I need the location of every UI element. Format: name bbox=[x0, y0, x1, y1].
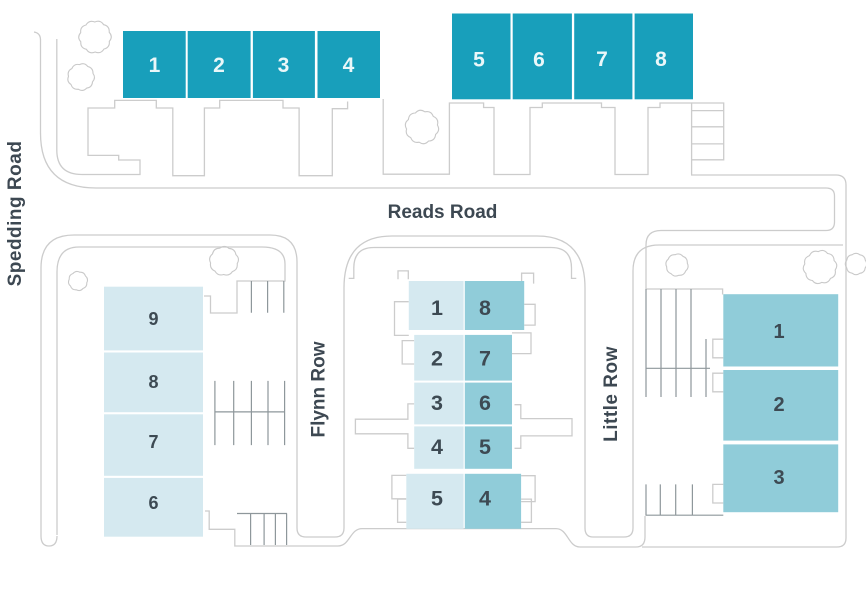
svg-text:Reads Road: Reads Road bbox=[388, 202, 498, 223]
svg-text:1: 1 bbox=[149, 54, 161, 77]
svg-text:4: 4 bbox=[479, 487, 491, 511]
svg-text:5: 5 bbox=[473, 49, 485, 72]
svg-text:Little Row: Little Row bbox=[601, 346, 622, 442]
svg-text:7: 7 bbox=[596, 48, 608, 71]
svg-text:6: 6 bbox=[533, 49, 545, 72]
svg-text:2: 2 bbox=[773, 394, 784, 416]
svg-text:8: 8 bbox=[148, 372, 158, 392]
svg-text:3: 3 bbox=[431, 391, 443, 415]
svg-text:6: 6 bbox=[148, 493, 158, 513]
svg-text:Flynn Row: Flynn Row bbox=[309, 341, 330, 437]
svg-text:4: 4 bbox=[343, 54, 355, 77]
svg-text:7: 7 bbox=[148, 432, 158, 452]
svg-text:4: 4 bbox=[431, 435, 443, 459]
svg-text:3: 3 bbox=[278, 54, 290, 77]
svg-text:8: 8 bbox=[479, 296, 491, 320]
svg-text:2: 2 bbox=[431, 347, 443, 371]
svg-text:9: 9 bbox=[148, 309, 158, 329]
svg-text:Spedding Road: Spedding Road bbox=[5, 141, 26, 287]
svg-text:5: 5 bbox=[431, 487, 443, 511]
svg-text:2: 2 bbox=[213, 54, 225, 77]
svg-text:6: 6 bbox=[479, 391, 491, 415]
svg-text:1: 1 bbox=[431, 296, 443, 320]
svg-text:1: 1 bbox=[773, 321, 784, 343]
svg-text:5: 5 bbox=[479, 435, 491, 459]
svg-text:7: 7 bbox=[479, 347, 491, 371]
svg-text:3: 3 bbox=[773, 467, 784, 489]
svg-text:8: 8 bbox=[655, 48, 667, 71]
